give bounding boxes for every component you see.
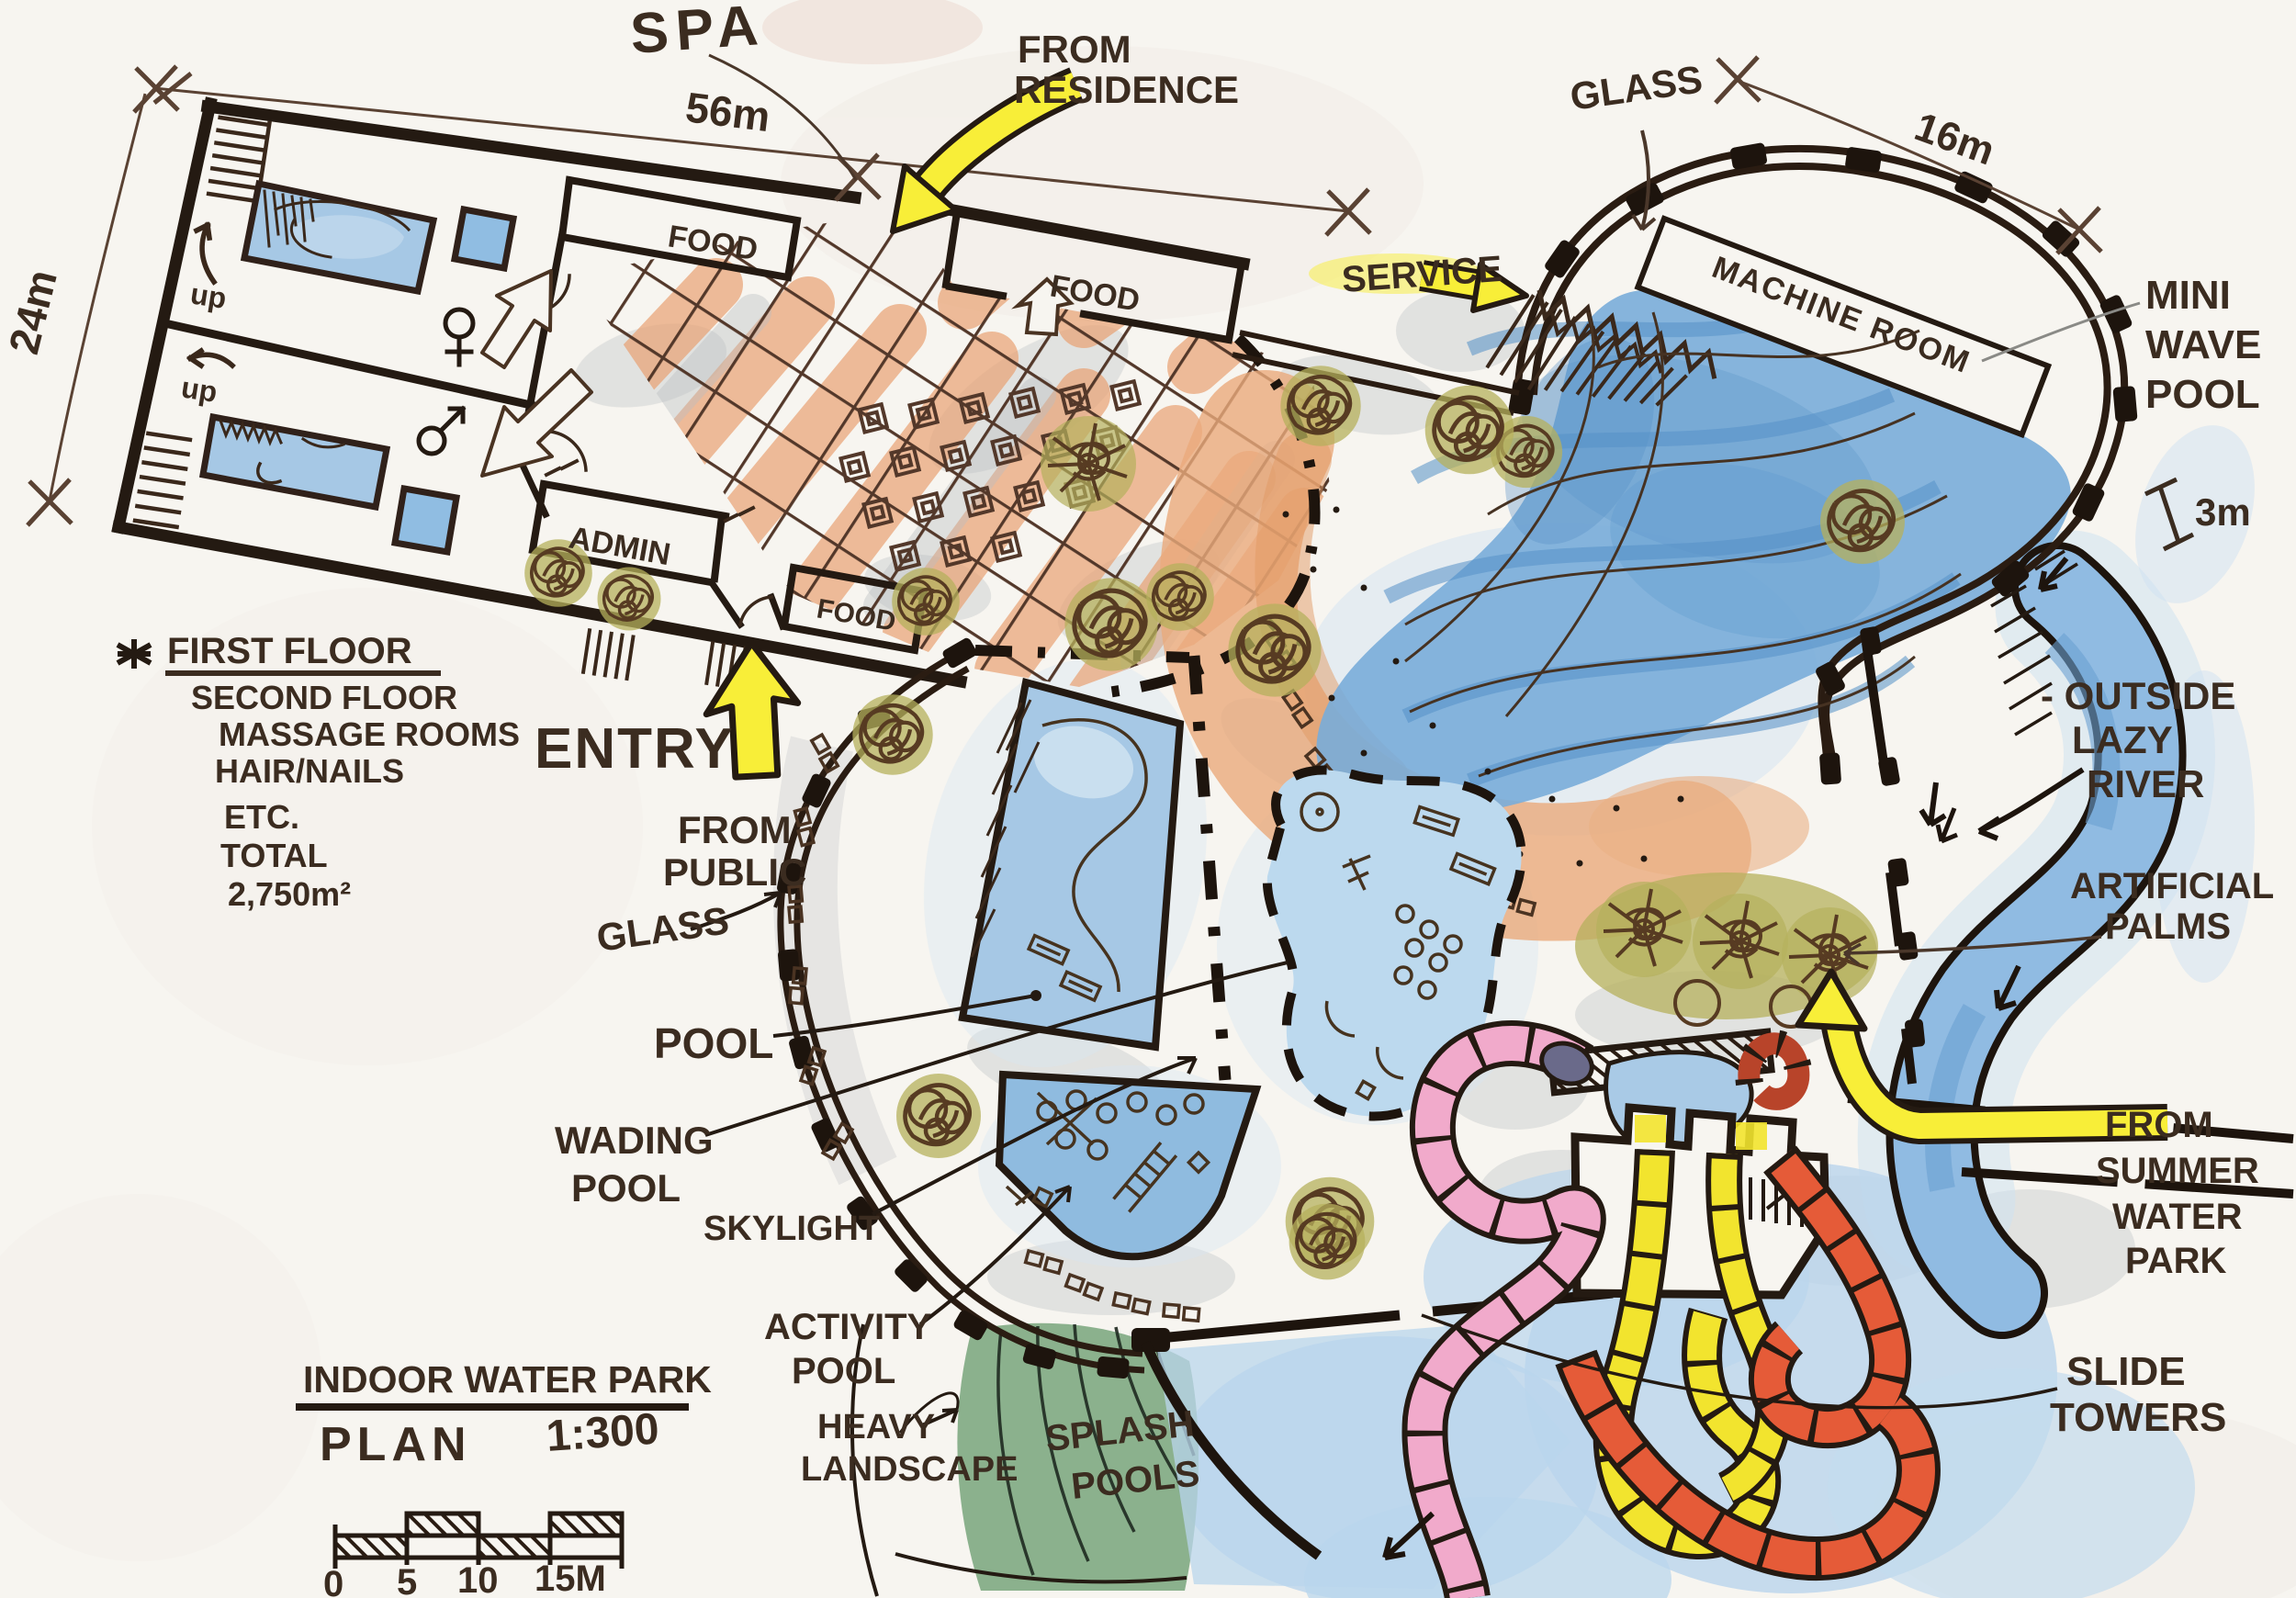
svg-text:FROM: FROM bbox=[2105, 1105, 2213, 1145]
svg-text:PLAN: PLAN bbox=[320, 1418, 472, 1471]
svg-text:POOL: POOL bbox=[654, 1019, 773, 1067]
svg-text:HAIR/NAILS: HAIR/NAILS bbox=[215, 752, 404, 790]
svg-text:- OUTSIDE: - OUTSIDE bbox=[2041, 674, 2235, 717]
svg-text:TOTAL: TOTAL bbox=[220, 837, 328, 874]
svg-text:WAVE: WAVE bbox=[2145, 322, 2261, 367]
svg-text:5: 5 bbox=[397, 1562, 417, 1598]
svg-text:FIRST FLOOR: FIRST FLOOR bbox=[167, 631, 412, 671]
svg-text:WATER: WATER bbox=[2112, 1197, 2243, 1237]
svg-text:MASSAGE ROOMS: MASSAGE ROOMS bbox=[219, 715, 520, 753]
svg-text:FROM: FROM bbox=[678, 808, 792, 851]
svg-text:ENTRY: ENTRY bbox=[535, 717, 735, 781]
svg-text:2,750m²: 2,750m² bbox=[228, 875, 351, 913]
svg-text:15M: 15M bbox=[535, 1559, 606, 1598]
svg-text:3m: 3m bbox=[2195, 490, 2251, 534]
svg-text:RIVER: RIVER bbox=[2087, 762, 2204, 805]
svg-text:FROM: FROM bbox=[1018, 28, 1131, 71]
svg-text:SKYLIGHT: SKYLIGHT bbox=[703, 1210, 880, 1248]
svg-text:56m: 56m bbox=[683, 83, 773, 141]
svg-text:up: up bbox=[179, 370, 219, 409]
svg-text:PARK: PARK bbox=[2125, 1241, 2226, 1281]
svg-text:INDOOR WATER PARK: INDOOR WATER PARK bbox=[303, 1358, 712, 1401]
svg-text:ACTIVITY: ACTIVITY bbox=[764, 1307, 932, 1347]
svg-text:WADING: WADING bbox=[555, 1119, 714, 1162]
svg-text:SLIDE: SLIDE bbox=[2066, 1349, 2186, 1394]
svg-text:LAZY: LAZY bbox=[2072, 718, 2173, 761]
svg-text:ARTIFICIAL: ARTIFICIAL bbox=[2070, 866, 2274, 906]
svg-text:PUBLIC: PUBLIC bbox=[663, 850, 806, 894]
svg-text:LANDSCAPE: LANDSCAPE bbox=[801, 1450, 1018, 1489]
svg-text:TOWERS: TOWERS bbox=[2050, 1395, 2226, 1440]
svg-text:up: up bbox=[188, 276, 229, 315]
svg-text:RESIDENCE: RESIDENCE bbox=[1014, 68, 1239, 111]
svg-text:PALMS: PALMS bbox=[2105, 906, 2231, 947]
svg-text:SPA: SPA bbox=[628, 0, 767, 66]
svg-text:POOL: POOL bbox=[2145, 372, 2260, 417]
svg-text:SUMMER: SUMMER bbox=[2096, 1151, 2259, 1191]
svg-text:MINI: MINI bbox=[2145, 273, 2231, 318]
svg-text:POOL: POOL bbox=[571, 1166, 681, 1210]
svg-text:POOL: POOL bbox=[792, 1351, 895, 1391]
svg-text:SECOND FLOOR: SECOND FLOOR bbox=[191, 679, 457, 716]
svg-text:0: 0 bbox=[323, 1564, 343, 1598]
svg-text:1:300: 1:300 bbox=[545, 1405, 660, 1461]
svg-text:HEAVY: HEAVY bbox=[817, 1408, 935, 1446]
svg-text:10: 10 bbox=[457, 1560, 499, 1598]
svg-text:ETC.: ETC. bbox=[224, 798, 299, 836]
